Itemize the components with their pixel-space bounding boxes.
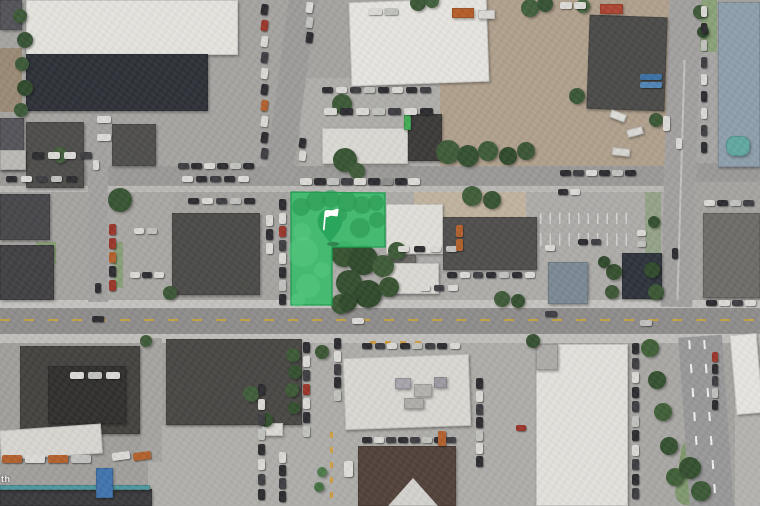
parked-car <box>258 414 265 425</box>
parked-car <box>71 455 91 463</box>
parked-car <box>202 198 213 204</box>
parked-car <box>570 189 580 195</box>
canopy <box>726 136 750 156</box>
building <box>703 213 760 298</box>
parked-car <box>375 343 385 349</box>
parked-car <box>599 170 610 176</box>
container <box>478 10 495 19</box>
parked-car <box>93 160 99 170</box>
tree-canopy <box>598 256 610 268</box>
parked-car <box>6 176 17 182</box>
parked-car <box>476 456 483 467</box>
parked-car <box>178 163 189 169</box>
container <box>96 468 113 498</box>
parked-car <box>560 170 571 176</box>
parked-car <box>717 200 728 206</box>
parked-car <box>476 391 483 402</box>
parked-car <box>476 404 483 415</box>
tree-canopy <box>17 32 33 48</box>
satellite-map[interactable]: th <box>0 0 760 506</box>
parked-car <box>473 272 483 278</box>
tree-canopy <box>15 57 29 71</box>
parked-car <box>386 437 396 443</box>
parked-car <box>260 20 268 32</box>
parked-car <box>378 87 389 93</box>
parked-car <box>334 351 341 362</box>
parked-car <box>352 318 364 324</box>
parked-car <box>612 170 623 176</box>
parked-car <box>637 241 646 247</box>
parked-car <box>66 176 77 182</box>
parked-car <box>704 200 715 206</box>
pavement-area <box>148 426 256 506</box>
building <box>0 150 26 170</box>
parked-car <box>327 178 339 185</box>
parked-car <box>260 52 268 64</box>
tree-canopy <box>372 255 394 277</box>
parked-car <box>672 248 678 259</box>
parked-car <box>279 452 286 463</box>
pin-shadow <box>327 242 339 246</box>
parked-car <box>260 100 268 112</box>
parked-car <box>420 285 430 291</box>
parked-car <box>48 152 60 159</box>
rooftop-hvac <box>404 398 424 409</box>
parked-car <box>558 189 568 195</box>
parked-car <box>362 343 372 349</box>
parked-car <box>303 426 310 437</box>
parked-car <box>336 87 347 93</box>
parked-car <box>591 239 601 245</box>
parked-car <box>217 163 228 169</box>
parked-car <box>303 370 310 381</box>
parked-car <box>395 178 407 185</box>
parked-car <box>204 163 215 169</box>
tree-canopy <box>14 103 28 117</box>
tree-canopy <box>649 113 663 127</box>
parked-car <box>364 87 375 93</box>
parked-car <box>372 108 385 115</box>
parked-car <box>109 252 116 263</box>
parked-car <box>392 87 403 93</box>
parked-car <box>191 163 202 169</box>
parked-car <box>260 116 268 128</box>
parked-car <box>109 266 116 277</box>
roof-edge <box>0 485 150 490</box>
parked-car <box>632 416 639 427</box>
tree-canopy <box>569 88 585 104</box>
parked-car <box>142 272 152 278</box>
building <box>343 354 471 430</box>
parked-car <box>632 401 639 412</box>
parked-car <box>243 163 254 169</box>
building <box>0 489 152 506</box>
alley <box>142 338 162 462</box>
parked-car <box>701 142 707 153</box>
parked-car <box>298 151 306 162</box>
stall-lines <box>540 213 632 224</box>
parked-car <box>279 253 286 264</box>
parked-car <box>324 108 337 115</box>
parked-car <box>476 378 483 389</box>
parked-car <box>279 491 286 502</box>
parked-car <box>260 84 268 96</box>
tree-canopy <box>462 186 482 206</box>
parked-car <box>258 459 265 470</box>
building <box>172 213 260 295</box>
parked-car <box>2 455 22 463</box>
parked-car <box>266 243 273 254</box>
parked-car <box>334 364 341 375</box>
parked-car <box>447 272 457 278</box>
building <box>112 124 156 166</box>
parked-car <box>450 343 460 349</box>
parking-curb <box>330 432 333 502</box>
parked-car <box>384 8 398 15</box>
parked-car <box>712 400 718 410</box>
tree-canopy <box>379 277 399 297</box>
container <box>452 8 474 18</box>
parked-car <box>106 372 120 379</box>
rooftop-hvac <box>414 384 432 397</box>
parked-car <box>303 356 310 367</box>
parked-car <box>258 489 265 500</box>
parked-car <box>97 134 111 141</box>
tree-canopy <box>315 345 329 359</box>
parked-car <box>701 91 707 102</box>
tree-canopy <box>314 482 324 492</box>
parked-car <box>712 352 718 362</box>
parked-car <box>486 272 496 278</box>
parked-car <box>400 343 410 349</box>
parked-car <box>732 300 743 306</box>
parked-car <box>560 2 572 9</box>
parked-car <box>701 57 707 68</box>
parked-car <box>70 372 84 379</box>
parked-car <box>303 412 310 423</box>
parked-car <box>230 163 241 169</box>
parked-car <box>260 68 268 80</box>
parked-car <box>632 459 639 470</box>
parked-car <box>266 229 273 240</box>
parked-car <box>134 228 144 234</box>
parked-car <box>398 437 408 443</box>
parked-car <box>420 108 433 115</box>
parked-car <box>499 272 509 278</box>
parked-car <box>196 176 207 182</box>
parked-car <box>344 461 353 477</box>
parked-car <box>663 116 670 131</box>
parked-car <box>640 320 652 326</box>
parked-car <box>701 74 707 85</box>
tree-canopy <box>163 286 177 300</box>
tree-canopy <box>511 294 525 308</box>
parked-car <box>88 372 102 379</box>
parked-car <box>356 108 369 115</box>
tree-canopy <box>108 188 132 212</box>
parked-car <box>340 108 353 115</box>
parked-car <box>625 170 636 176</box>
parked-car <box>476 417 483 428</box>
tree-canopy <box>288 402 300 414</box>
tree-canopy <box>648 371 666 389</box>
parked-car <box>476 443 483 454</box>
tree-canopy <box>494 291 510 307</box>
parked-car <box>322 87 333 93</box>
parked-car <box>632 445 639 456</box>
parked-car <box>279 240 286 251</box>
parked-car <box>305 32 313 44</box>
tree-canopy <box>526 334 540 348</box>
parked-car <box>97 116 111 123</box>
parked-car <box>25 455 45 463</box>
tree-canopy <box>499 147 517 165</box>
container <box>600 4 623 14</box>
building <box>0 245 54 300</box>
tree-canopy <box>436 140 460 164</box>
parked-car <box>258 429 265 440</box>
parked-car <box>95 283 101 293</box>
parked-car <box>632 372 639 383</box>
parked-car <box>545 311 557 317</box>
parked-car <box>408 178 420 185</box>
parked-car <box>701 6 707 17</box>
parked-car <box>434 285 444 291</box>
tree-canopy <box>354 280 382 308</box>
parked-car <box>456 225 463 237</box>
rooftop-sign-text: th <box>1 474 11 484</box>
parked-car <box>701 125 707 136</box>
parked-car <box>412 343 422 349</box>
parked-car <box>632 343 639 354</box>
tree-canopy <box>654 403 672 421</box>
building <box>26 54 208 111</box>
tree-canopy <box>317 467 327 477</box>
parked-car <box>743 200 754 206</box>
tree-canopy <box>679 457 701 479</box>
parked-car <box>210 176 221 182</box>
parked-car <box>422 437 432 443</box>
parked-car <box>730 200 741 206</box>
parked-car <box>188 198 199 204</box>
parked-car <box>712 388 718 398</box>
parked-car <box>368 178 380 185</box>
parked-car <box>51 176 62 182</box>
parked-car <box>437 343 447 349</box>
tree-canopy <box>660 437 678 455</box>
parked-car <box>712 364 718 374</box>
parked-car <box>574 2 586 9</box>
parked-car <box>32 152 44 159</box>
parked-car <box>632 358 639 369</box>
tree-canopy <box>517 142 535 160</box>
parked-car <box>368 8 382 15</box>
parked-car <box>244 198 255 204</box>
tree-canopy <box>17 80 33 96</box>
parked-car <box>719 300 730 306</box>
parked-car <box>334 390 341 401</box>
parked-car <box>374 437 384 443</box>
parked-car <box>154 272 164 278</box>
parked-car <box>354 178 366 185</box>
parked-car <box>216 198 227 204</box>
tree-canopy <box>606 264 622 280</box>
parked-car <box>279 267 286 278</box>
parked-car <box>676 138 682 149</box>
parked-car <box>266 215 273 226</box>
parked-car <box>36 176 47 182</box>
tree-canopy <box>644 262 660 278</box>
parked-car <box>350 87 361 93</box>
parked-car <box>334 338 341 349</box>
building <box>26 0 238 55</box>
tree-canopy <box>243 386 259 402</box>
tree-canopy <box>641 339 659 357</box>
parked-car <box>701 108 707 119</box>
parked-car <box>706 300 717 306</box>
parked-car <box>182 176 193 182</box>
parked-car <box>258 444 265 455</box>
parked-car <box>230 198 241 204</box>
rooftop-hvac <box>395 378 411 389</box>
parked-car <box>388 108 401 115</box>
parked-car <box>448 285 458 291</box>
parked-car <box>303 384 310 395</box>
parked-car <box>260 36 268 48</box>
parked-car <box>258 474 265 485</box>
parked-car <box>362 437 372 443</box>
parked-car <box>712 376 718 386</box>
building <box>548 262 588 304</box>
parked-car <box>258 399 265 410</box>
tree-canopy <box>691 481 711 501</box>
parked-car <box>460 272 470 278</box>
parked-car <box>130 272 140 278</box>
parked-car <box>258 384 265 395</box>
pavement-notch <box>536 344 558 370</box>
parked-car <box>279 478 286 489</box>
building <box>0 194 50 240</box>
parked-car <box>632 474 639 485</box>
parked-car <box>341 178 353 185</box>
parked-car <box>303 342 310 353</box>
parked-car <box>430 246 441 252</box>
parked-car <box>516 425 526 431</box>
tree-canopy <box>648 284 664 300</box>
parked-car <box>420 87 431 93</box>
parked-car <box>446 437 456 443</box>
parked-car <box>298 138 306 149</box>
parked-car <box>238 176 249 182</box>
parked-car <box>64 152 76 159</box>
parked-car <box>279 294 286 305</box>
parked-car <box>573 170 584 176</box>
parked-car <box>80 152 92 159</box>
parked-car <box>303 398 310 409</box>
parked-car <box>314 178 326 185</box>
parked-car <box>632 430 639 441</box>
parked-car <box>260 4 268 16</box>
parked-car <box>476 430 483 441</box>
parked-car <box>586 170 597 176</box>
parked-car <box>438 431 446 446</box>
parked-car <box>109 224 116 235</box>
parked-car <box>637 230 646 236</box>
tree-canopy <box>288 365 302 379</box>
tree-canopy <box>648 216 660 228</box>
tree-canopy <box>483 191 501 209</box>
rooftop-hvac <box>434 377 447 388</box>
parked-car <box>406 87 417 93</box>
tree-canopy <box>285 383 299 397</box>
tree-canopy <box>339 293 357 311</box>
parked-car <box>300 178 312 185</box>
parked-car <box>404 108 417 115</box>
parked-car <box>632 488 639 499</box>
parked-car <box>640 74 662 80</box>
parked-car <box>632 387 639 398</box>
parked-car <box>279 280 286 291</box>
parked-car <box>260 132 268 144</box>
parked-car <box>545 245 555 251</box>
parked-car <box>109 280 116 291</box>
parked-car <box>456 239 463 251</box>
tree-canopy <box>349 163 365 179</box>
building <box>166 339 302 425</box>
parked-car <box>578 239 588 245</box>
parked-car <box>279 213 286 224</box>
parked-car <box>410 437 420 443</box>
parked-car <box>745 300 756 306</box>
tree-canopy <box>457 145 479 167</box>
tree-canopy <box>605 285 619 299</box>
parked-car <box>92 316 104 322</box>
tree-canopy <box>478 141 498 161</box>
parked-car <box>414 246 425 252</box>
parked-car <box>398 246 409 252</box>
parked-car <box>279 226 286 237</box>
parked-car <box>701 40 707 51</box>
parked-car <box>279 199 286 210</box>
parked-car <box>48 455 68 463</box>
tree-canopy <box>140 335 152 347</box>
tree-canopy <box>286 348 300 362</box>
parked-car <box>334 377 341 388</box>
parked-car <box>425 343 435 349</box>
parked-car <box>147 228 157 234</box>
parked-car <box>640 82 662 88</box>
parked-car <box>21 176 32 182</box>
building <box>586 15 667 112</box>
parked-car <box>387 343 397 349</box>
parked-car <box>109 238 116 249</box>
parked-car <box>279 465 286 476</box>
parked-car <box>525 272 535 278</box>
parked-car <box>381 178 393 185</box>
parked-car <box>701 23 707 34</box>
parked-car <box>224 176 235 182</box>
road-marking <box>0 176 695 177</box>
aerial-imagery <box>0 0 760 506</box>
tree-canopy <box>13 9 27 23</box>
parked-car <box>512 272 522 278</box>
